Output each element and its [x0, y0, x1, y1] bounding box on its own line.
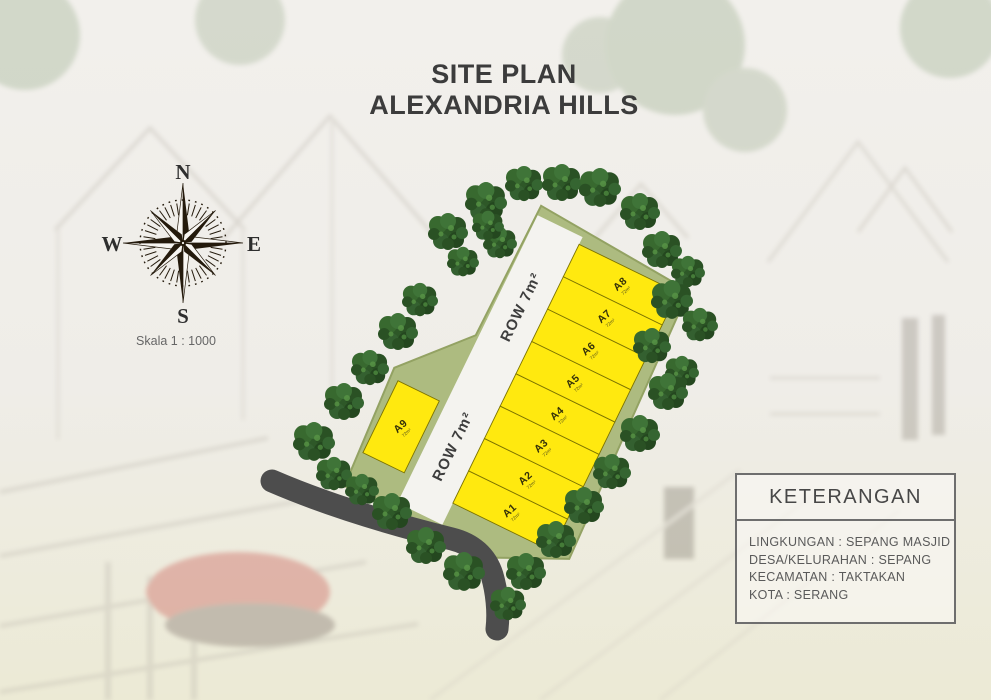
compass-letter-s: S [177, 304, 189, 328]
tree-icon [505, 166, 543, 201]
tree-icon [406, 527, 446, 564]
tree-icon [648, 373, 688, 410]
compass-ray [177, 203, 179, 215]
tree-icon [490, 587, 526, 620]
legend-row-kota: KOTA : SERANG [749, 589, 942, 603]
tree-icon [324, 383, 364, 420]
tree-icon [472, 211, 504, 241]
legend-box: KETERANGAN LINGKUNGAN : SEPANG MASJID DE… [735, 473, 956, 624]
tree-icon [542, 164, 582, 201]
compass-ray [196, 268, 201, 279]
compass-ray [187, 271, 189, 283]
tree-icon [351, 350, 389, 385]
page-title-line2: ALEXANDRIA HILLS [18, 90, 990, 121]
compass-ray [145, 252, 156, 256]
tree-icon [620, 193, 660, 230]
compass-ray [192, 205, 196, 216]
tree-icon [372, 493, 412, 530]
legend-title: KETERANGAN [737, 475, 954, 521]
legend-row-desa: DESA/KELURAHAN : SEPANG [749, 554, 942, 568]
tree-icon [506, 553, 546, 590]
legend-body: LINGKUNGAN : SEPANG MASJID DESA/KELURAHA… [737, 521, 954, 602]
compass-ray [177, 271, 179, 283]
compass-ray [211, 247, 223, 249]
legend-row-kecamatan: KECAMATAN : TAKTAKAN [749, 571, 942, 585]
scale-label: Skala 1 : 1000 [120, 334, 232, 348]
compass-rose: N E S W [78, 148, 288, 338]
tree-icon [620, 415, 660, 452]
compass-ray [147, 225, 158, 230]
tree-icon [345, 474, 379, 505]
tree-icon [293, 422, 335, 461]
tree-icon [633, 328, 671, 363]
compass-ray [143, 237, 155, 239]
compass-ray [196, 207, 201, 218]
compass-ray [165, 207, 170, 218]
compass-ray [210, 231, 221, 235]
tree-icon [402, 283, 438, 316]
compass-ray [211, 237, 223, 239]
tree-icon [682, 308, 718, 341]
tree-icon [443, 552, 485, 591]
site-plan-poster: A172m²A272m²A372m²A472m²A572m²A672m²A772… [0, 0, 991, 700]
compass-ray [165, 268, 170, 279]
compass-letter-n: N [175, 160, 190, 184]
compass-ray [171, 270, 175, 281]
compass-ray [187, 203, 189, 215]
tree-icon [579, 168, 621, 207]
compass-ray [147, 256, 158, 261]
page-title-line1: SITE PLAN [18, 59, 990, 90]
compass-ray [145, 231, 156, 235]
compass-ray [208, 225, 219, 230]
tree-icon [428, 213, 468, 250]
tree-icon [593, 454, 631, 489]
compass-ray [143, 247, 155, 249]
compass-ray [171, 205, 175, 216]
tree-icon [564, 487, 604, 524]
tree-icon [536, 521, 576, 558]
compass-ray [192, 270, 196, 281]
tree-icon [447, 247, 479, 277]
page-title: SITE PLAN ALEXANDRIA HILLS [18, 59, 990, 121]
compass-ray [208, 256, 219, 261]
compass-letter-e: E [247, 232, 261, 256]
compass-letter-w: W [102, 232, 123, 256]
legend-row-lingkungan: LINGKUNGAN : SEPANG MASJID [749, 536, 942, 550]
compass-hub-dot [182, 242, 184, 244]
compass-ray [210, 252, 221, 256]
tree-icon [378, 313, 418, 350]
